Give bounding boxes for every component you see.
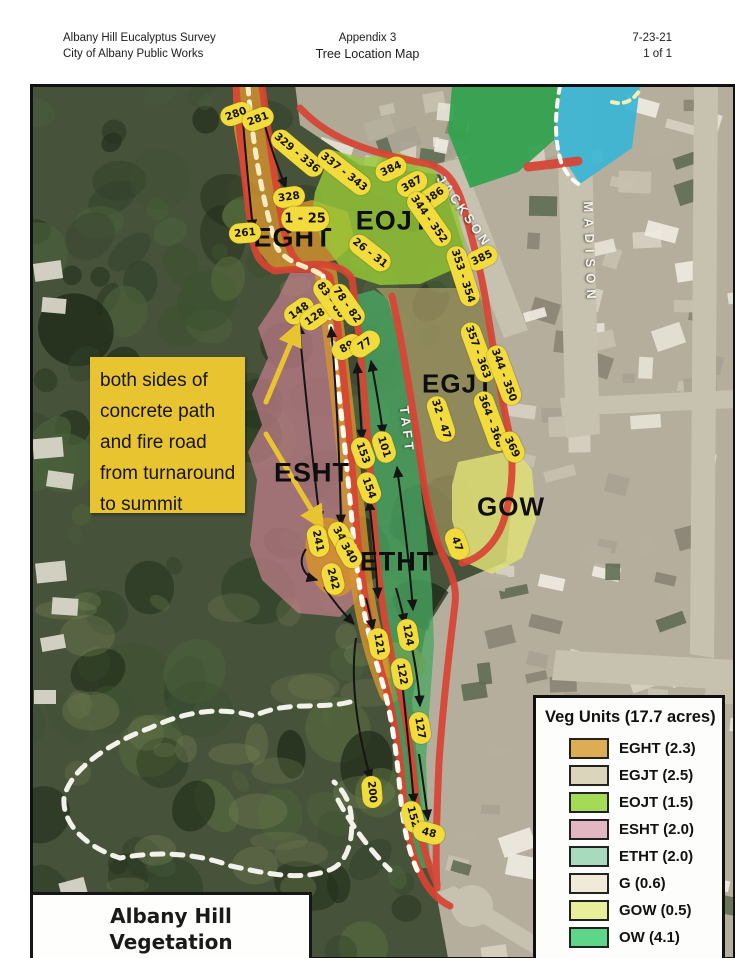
rooftop	[618, 171, 651, 194]
legend-swatch	[569, 927, 609, 948]
callout-line: from turnaround	[100, 458, 245, 489]
rooftop	[456, 830, 475, 841]
clearing-patch	[335, 623, 357, 649]
zone-label-esht: ESHT	[274, 458, 350, 489]
callout-line: and fire road	[100, 427, 245, 458]
legend-label: ETHT (2.0)	[619, 848, 693, 865]
clearing-patch	[107, 878, 149, 894]
legend-label: ESHT (2.0)	[619, 821, 694, 838]
legend-label: G (0.6)	[619, 875, 666, 892]
street-right	[690, 84, 718, 658]
clearing-patch	[135, 835, 177, 866]
clearing-patch	[175, 735, 197, 763]
clearing-patch	[208, 593, 260, 622]
legend-swatch	[569, 846, 609, 867]
legend-swatch	[569, 792, 609, 813]
legend-row: G (0.6)	[569, 870, 722, 897]
zone-label-gow: GOW	[477, 492, 545, 523]
clearing-patch	[67, 690, 91, 719]
legend-rows: EGHT (2.3)EGJT (2.5)EOJT (1.5)ESHT (2.0)…	[536, 735, 722, 951]
legend-row: ETHT (2.0)	[569, 843, 722, 870]
legend-row: EGHT (2.3)	[569, 735, 722, 762]
callout-line: concrete path	[100, 396, 245, 427]
rooftop	[638, 357, 653, 379]
callout-line: both sides of	[100, 365, 245, 396]
legend-title: Veg Units (17.7 acres)	[545, 708, 722, 727]
rooftop	[529, 196, 557, 216]
legend: Veg Units (17.7 acres) EGHT (2.3)EGJT (2…	[533, 695, 725, 958]
clearing-patch	[229, 793, 288, 829]
clearing-patch	[60, 615, 115, 657]
rooftop	[481, 804, 500, 814]
legend-row: EGJT (2.5)	[569, 762, 722, 789]
callout-note: both sides ofconcrete pathand fire roadf…	[90, 357, 245, 513]
legend-row: ESHT (2.0)	[569, 816, 722, 843]
legend-swatch	[569, 900, 609, 921]
clearing-patch	[288, 673, 340, 700]
rooftop	[434, 138, 449, 154]
street-culdesac	[451, 885, 493, 927]
caption-line2: Vegetation Management Plan	[33, 929, 309, 958]
callout-line: to summit	[100, 489, 245, 520]
legend-label: OW (4.1)	[619, 929, 680, 946]
rooftop	[527, 232, 540, 249]
legend-swatch	[569, 765, 609, 786]
legend-label: EGJT (2.5)	[619, 767, 693, 784]
legend-label: EGHT (2.3)	[619, 740, 696, 757]
tree-label: 1 - 25	[281, 207, 329, 232]
legend-row: EOJT (1.5)	[569, 789, 722, 816]
rooftop	[623, 374, 635, 383]
legend-label: EOJT (1.5)	[619, 794, 693, 811]
legend-swatch	[569, 873, 609, 894]
clearing-patch	[245, 723, 268, 765]
legend-swatch	[569, 819, 609, 840]
caption-line1: Albany Hill	[33, 903, 309, 929]
scanned-map-page: Albany Hill Eucalyptus Survey City of Al…	[0, 0, 735, 958]
legend-row: OW (4.1)	[569, 924, 722, 951]
legend-label: GOW (0.5)	[619, 902, 692, 919]
legend-swatch	[569, 738, 609, 759]
legend-row: GOW (0.5)	[569, 897, 722, 924]
caption-box: Albany Hill Vegetation Management Plan	[30, 892, 312, 958]
rooftop	[605, 563, 620, 580]
tree-label: 200	[361, 775, 384, 809]
callout-text: both sides ofconcrete pathand fire roadf…	[100, 365, 245, 520]
rooftop	[630, 414, 661, 430]
zone-label-etht: ETHT	[360, 547, 435, 578]
